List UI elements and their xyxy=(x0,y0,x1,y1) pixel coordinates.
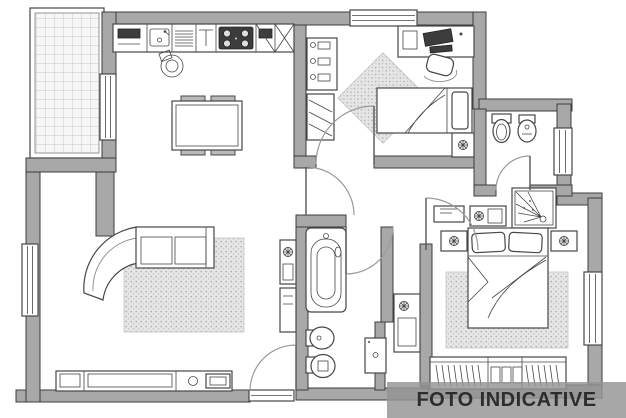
utility-cabinet xyxy=(280,240,296,332)
shoe-rack xyxy=(307,94,334,140)
bathroom-window xyxy=(554,128,572,175)
single-bed xyxy=(377,88,472,133)
bathtub xyxy=(306,228,346,312)
nightstand xyxy=(452,133,474,157)
stool xyxy=(159,50,183,77)
dining-table xyxy=(172,96,242,155)
nightstand-right xyxy=(551,231,577,251)
living-room-window xyxy=(22,244,38,316)
entrance-door xyxy=(250,345,296,391)
kitchen-window xyxy=(350,10,417,26)
double-bed xyxy=(468,228,548,328)
watermark-banner: FOTO INDICATIVE xyxy=(387,382,626,418)
tv-sideboard xyxy=(56,371,232,391)
washing-machine xyxy=(365,338,386,373)
shower xyxy=(512,188,556,228)
bedroom-window xyxy=(584,272,602,345)
toilet xyxy=(492,114,511,143)
floor-plan-drawing xyxy=(0,0,626,418)
boiler-cabinet xyxy=(394,294,420,352)
stove xyxy=(219,27,253,49)
terrace xyxy=(30,8,104,158)
toilet-2 xyxy=(306,355,335,378)
coat-rack xyxy=(307,38,337,90)
nightstand-left xyxy=(441,231,467,251)
kitchen-counter xyxy=(113,24,294,77)
bidet xyxy=(518,115,536,142)
desk xyxy=(398,26,474,57)
terrace-tiles xyxy=(35,13,99,153)
entrance-threshold xyxy=(249,390,294,401)
bidet-2 xyxy=(306,327,334,349)
floor-plan-image: FOTO INDICATIVE xyxy=(0,0,626,418)
kitchen-cabinet xyxy=(259,29,272,38)
kitchen-cabinet xyxy=(118,29,140,38)
watermark-text: FOTO INDICATIVE xyxy=(416,389,596,412)
tv xyxy=(206,374,230,388)
terrace-door xyxy=(100,74,116,140)
